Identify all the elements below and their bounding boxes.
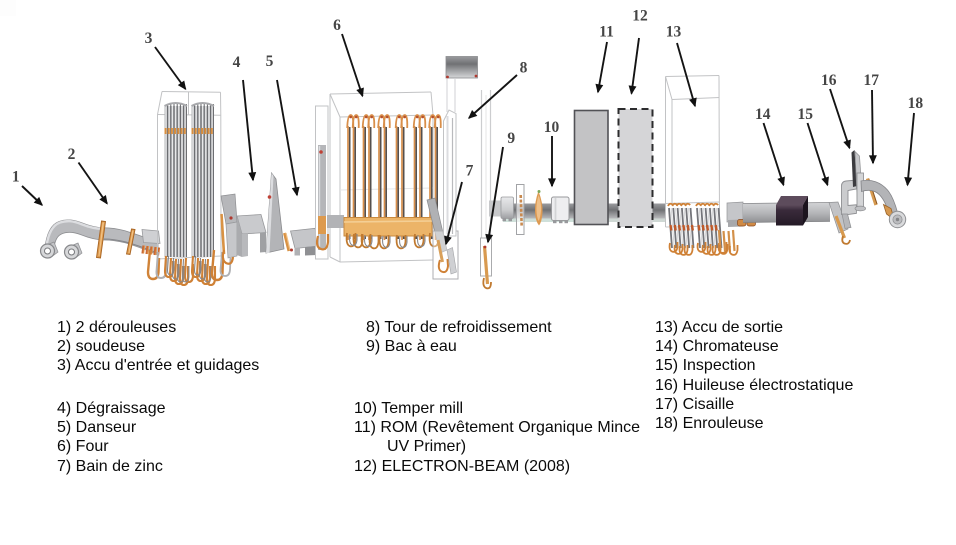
svg-text:2: 2 [68, 146, 76, 163]
svg-text:3: 3 [145, 30, 153, 47]
svg-text:8: 8 [520, 60, 528, 77]
svg-text:1: 1 [12, 169, 20, 186]
svg-text:6: 6 [333, 17, 341, 34]
svg-text:13: 13 [666, 24, 682, 41]
svg-text:16: 16 [821, 72, 837, 89]
svg-text:7: 7 [466, 163, 474, 180]
svg-text:18: 18 [908, 95, 924, 112]
svg-text:17: 17 [864, 72, 880, 89]
svg-text:12: 12 [632, 7, 648, 24]
svg-text:4: 4 [233, 54, 241, 71]
svg-text:14: 14 [755, 106, 771, 123]
svg-text:11: 11 [599, 24, 614, 41]
svg-text:5: 5 [266, 53, 274, 70]
svg-text:15: 15 [798, 106, 814, 123]
svg-text:10: 10 [544, 119, 560, 136]
svg-text:9: 9 [507, 130, 515, 147]
